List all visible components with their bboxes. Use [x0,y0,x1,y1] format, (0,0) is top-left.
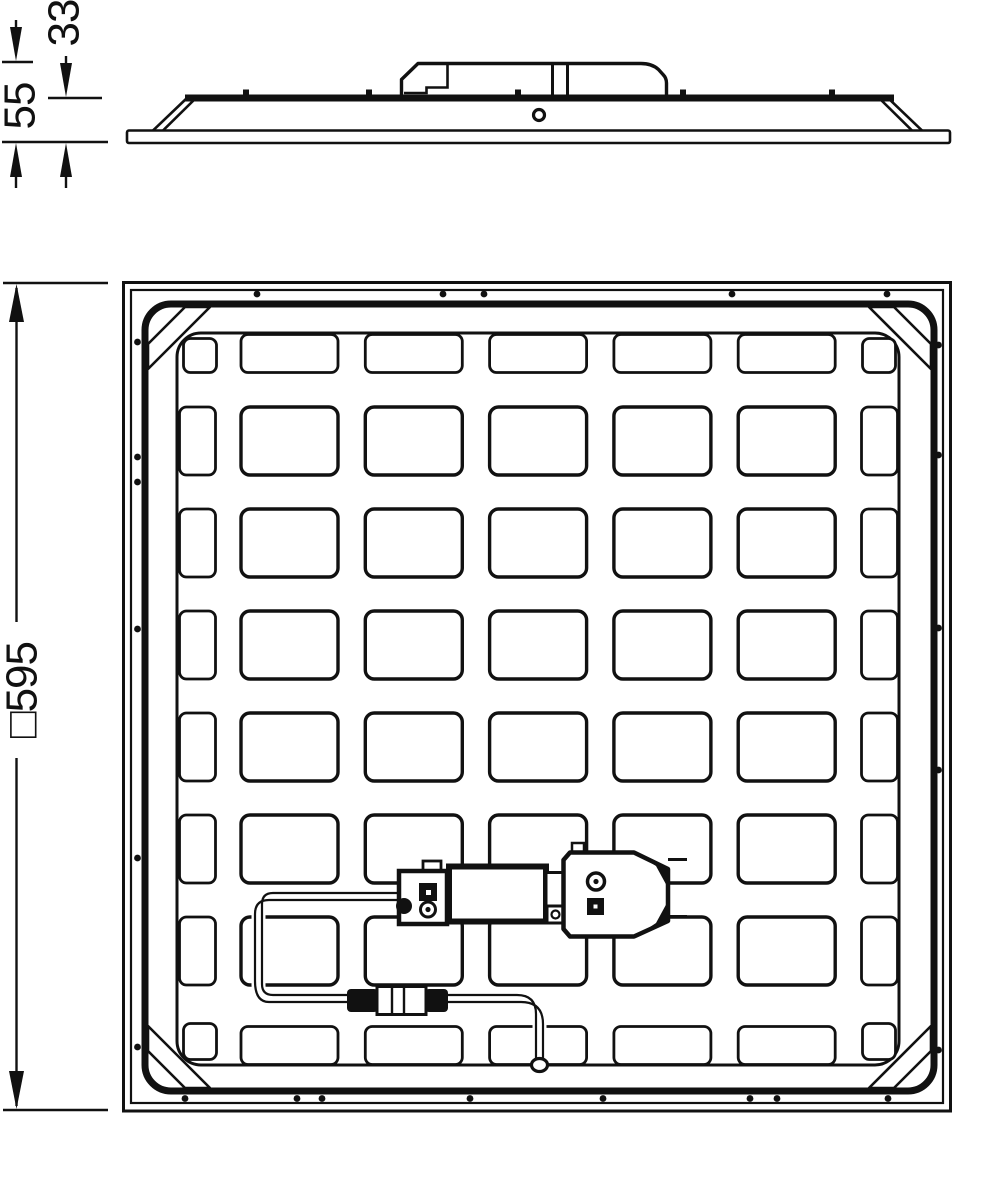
waffle-cell [241,815,338,883]
terminal-block [396,861,447,924]
waffle-edge-cell-bottom [614,1027,711,1065]
waffle-cell [365,611,462,679]
waffle-cell [365,407,462,475]
rivet-dot [134,479,141,486]
waffle-cell [490,713,587,781]
waffle-cell [738,509,835,577]
waffle-edge-cell-left [180,611,216,679]
waffle-edge-cell-left [180,917,216,985]
waffle-cell [614,407,711,475]
side-right-slant-inner [879,98,912,131]
waffle-cell [738,917,835,985]
rivet-dot [440,291,447,298]
waffle-cell [614,611,711,679]
band-tick [366,90,372,96]
waffle-cell [738,407,835,475]
waffle-cell [490,611,587,679]
rivet-dot [467,1095,474,1102]
rivet-dot [729,291,736,298]
waffle-cell [738,713,835,781]
waffle-grid [180,335,898,1065]
waffle-edge-cell-bottom [365,1027,462,1065]
waffle-cell [365,509,462,577]
inline-connector [347,987,448,1015]
back-view [124,283,951,1112]
dim-label-595: □595 [0,642,47,738]
rivet-dot [134,1044,141,1051]
waffle-edge-cell-top [490,335,587,373]
dim-label-55: 55 [0,83,45,130]
rivet-dot [747,1095,754,1102]
waffle-edge-cell-left [180,713,216,781]
waffle-edge-cell-top [738,335,835,373]
waffle-edge-cell-right [862,815,898,883]
screw-icon [534,110,545,121]
rivet-dot [600,1095,607,1102]
rivet-dot [319,1095,326,1102]
drawing-canvas: 55 33 [0,0,997,1200]
side-view [127,64,950,144]
dimension-595: □595 [0,283,108,1110]
waffle-edge-cell-bottom [738,1027,835,1065]
side-left-slant-inner [163,98,196,131]
waffle-edge-cell-right [862,611,898,679]
wire-end-grommet [532,1059,548,1072]
waffle-cell [241,611,338,679]
rivet-dot [182,1095,189,1102]
waffle-cell [365,917,462,985]
side-left-slant [153,98,187,131]
waffle-edge-cell-right [862,407,898,475]
rivet-dot [884,291,891,298]
rivet-dot [134,454,141,461]
waffle-cell [614,713,711,781]
band-tick [515,90,521,96]
driver-box [449,867,546,922]
waffle-cell [490,407,587,475]
band-tick [243,90,249,96]
waffle-cell [738,815,835,883]
waffle-cell [365,713,462,781]
dim-label-33: 33 [40,0,89,46]
waffle-edge-cell-left [180,815,216,883]
band-tick [680,90,686,96]
rivet-dot [254,291,261,298]
rivet-dot [134,339,141,346]
waffle-corner-cell [184,339,217,373]
waffle-edge-cell-top [614,335,711,373]
waffle-edge-cell-top [365,335,462,373]
waffle-corner-cell [863,1024,896,1060]
waffle-cell [241,713,338,781]
waffle-edge-cell-bottom [241,1027,338,1065]
rivet-dot [134,626,141,633]
waffle-edge-cell-top [241,335,338,373]
side-right-slant [888,98,922,131]
side-flange [127,131,950,144]
waffle-cell [241,509,338,577]
waffle-edge-cell-right [862,509,898,577]
waffle-corner-cell [863,339,896,373]
waffle-cell [490,509,587,577]
band-tick [829,90,835,96]
rivet-dot [774,1095,781,1102]
rivet-dot [134,855,141,862]
waffle-cell [241,407,338,475]
side-driver-box [402,64,667,97]
rivet-dot [481,291,488,298]
waffle-cell [614,509,711,577]
rivet-dot [885,1095,892,1102]
waffle-cell [738,611,835,679]
dimension-55-33: 55 33 [0,0,108,188]
waffle-edge-cell-right [862,713,898,781]
waffle-edge-cell-right [862,917,898,985]
waffle-edge-cell-left [180,509,216,577]
waffle-corner-cell [184,1024,217,1060]
rivet-dot [294,1095,301,1102]
waffle-edge-cell-left [180,407,216,475]
